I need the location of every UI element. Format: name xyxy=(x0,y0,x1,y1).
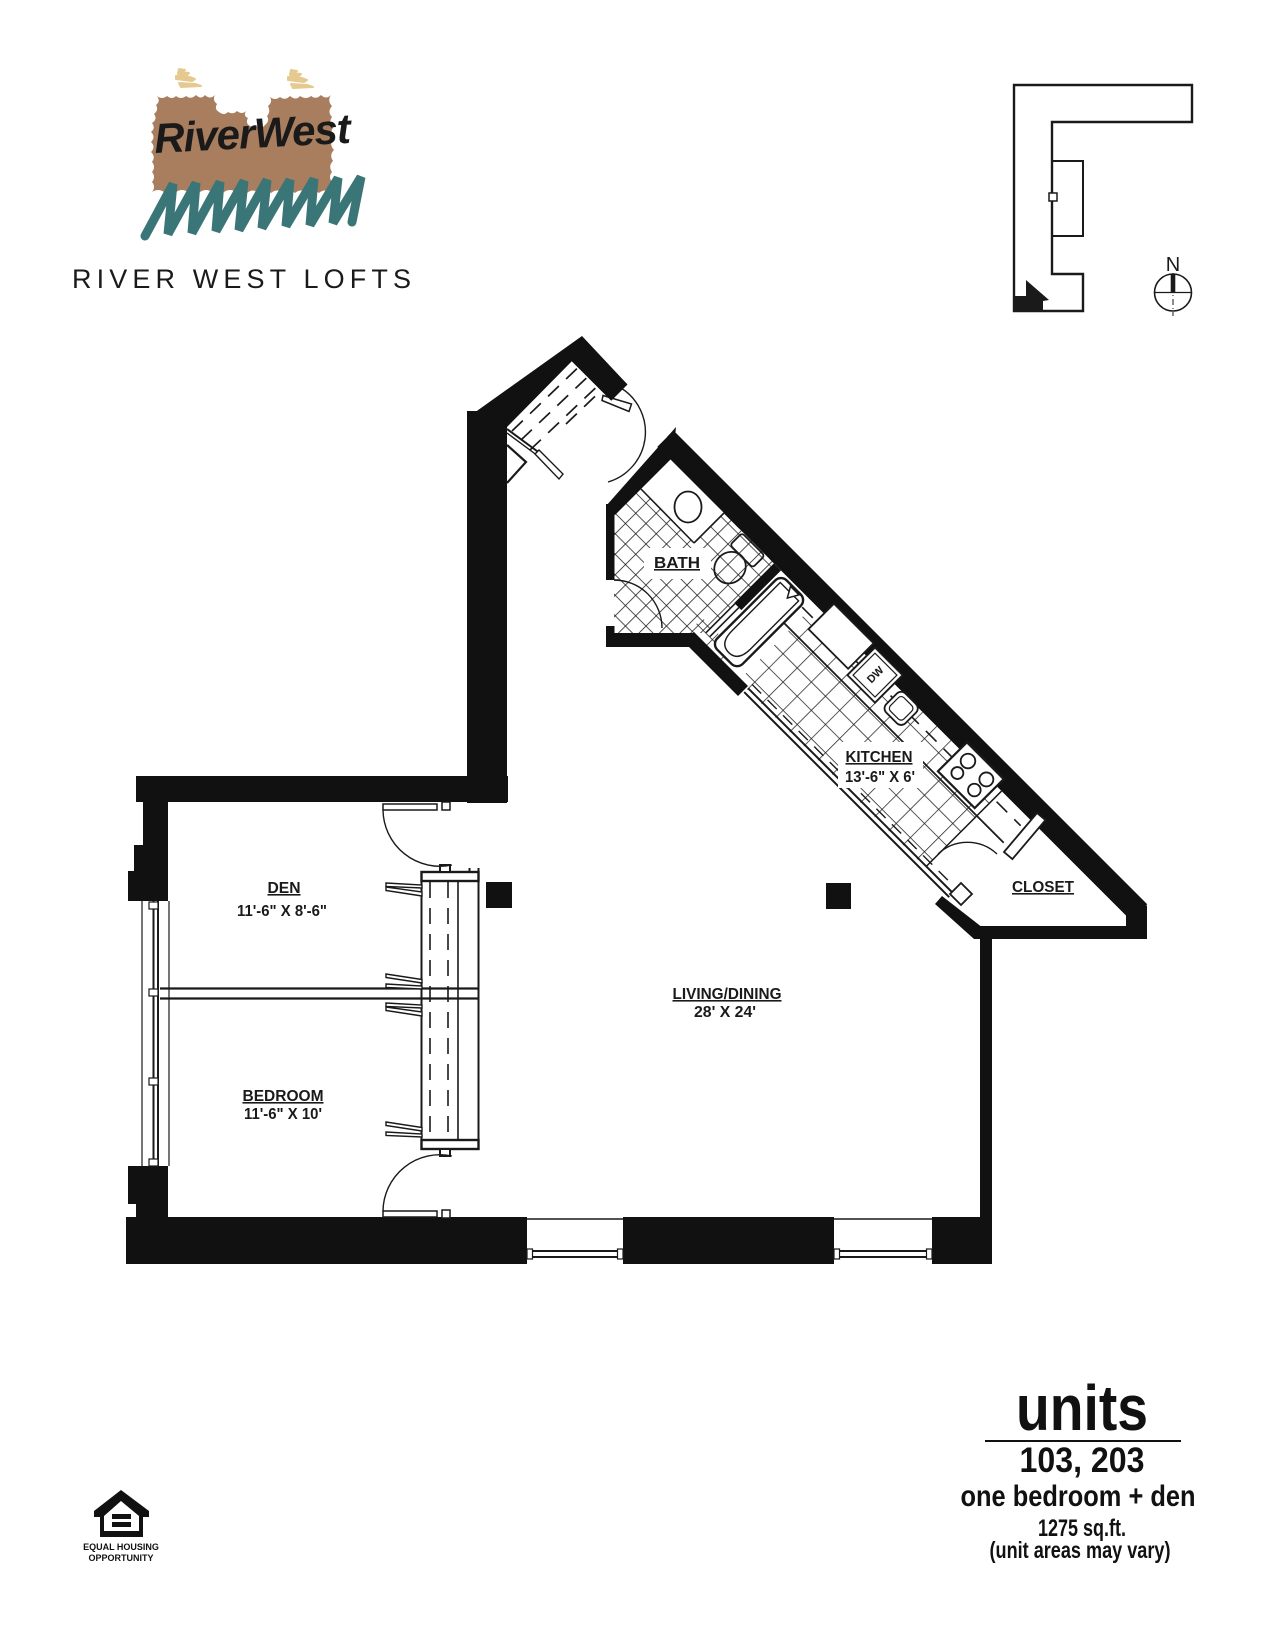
svg-text:BEDROOM: BEDROOM xyxy=(243,1088,324,1105)
svg-text:CLOSET: CLOSET xyxy=(1012,879,1074,896)
svg-text:N: N xyxy=(1166,254,1180,276)
svg-text:OPPORTUNITY: OPPORTUNITY xyxy=(88,1553,153,1563)
svg-text:EQUAL HOUSING: EQUAL HOUSING xyxy=(83,1542,159,1552)
svg-text:one bedroom + den: one bedroom + den xyxy=(961,1480,1196,1513)
svg-text:LIVING/DINING: LIVING/DINING xyxy=(673,986,782,1003)
svg-text:103, 203: 103, 203 xyxy=(1020,1441,1145,1480)
svg-text:11'-6" X 8'-6": 11'-6" X 8'-6" xyxy=(237,903,327,920)
svg-text:28' X 24': 28' X 24' xyxy=(694,1004,756,1021)
svg-text:DEN: DEN xyxy=(268,880,301,897)
svg-text:13'-6" X 6': 13'-6" X 6' xyxy=(845,769,915,786)
svg-text:BATH: BATH xyxy=(654,555,700,572)
svg-text:KITCHEN: KITCHEN xyxy=(846,749,913,766)
svg-text:units: units xyxy=(1016,1372,1148,1444)
svg-text:(unit areas may vary): (unit areas may vary) xyxy=(990,1537,1171,1563)
svg-text:11'-6" X 10': 11'-6" X 10' xyxy=(244,1106,322,1123)
